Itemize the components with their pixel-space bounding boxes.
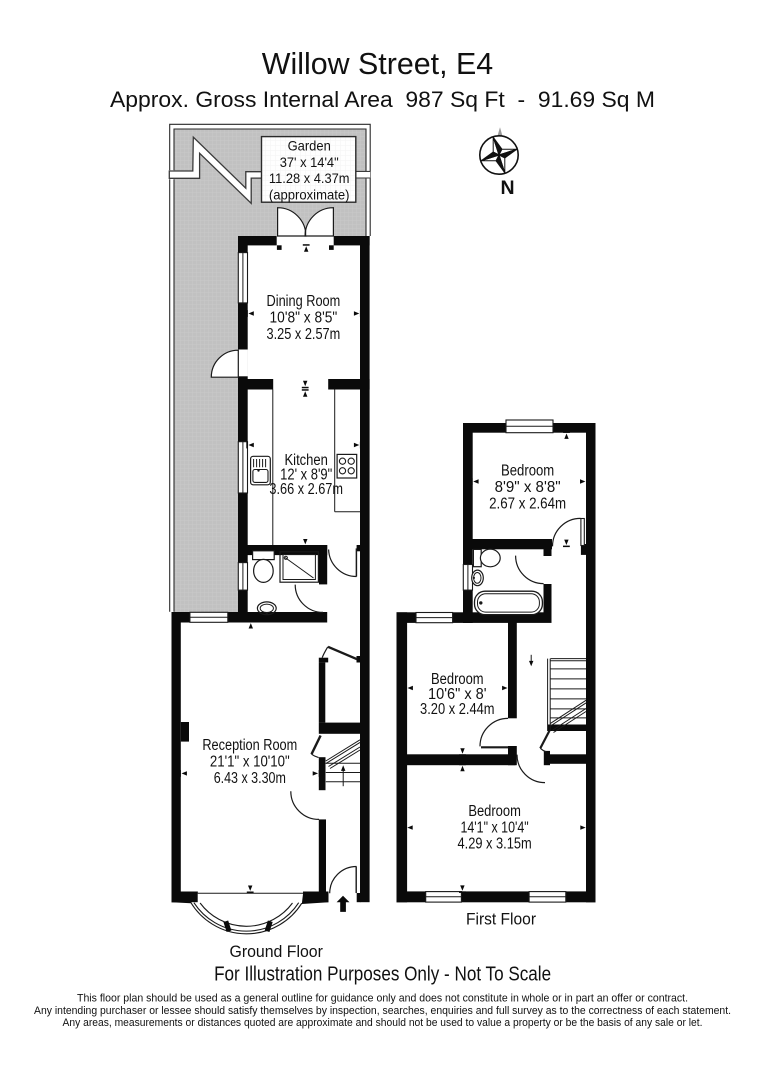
svg-text:10'8" x 8'5": 10'8" x 8'5" bbox=[270, 310, 338, 327]
svg-text:(approximate): (approximate) bbox=[269, 187, 350, 203]
svg-text:4.29 x 3.15m: 4.29 x 3.15m bbox=[458, 836, 532, 853]
svg-text:First Floor: First Floor bbox=[466, 911, 537, 929]
svg-text:Willow Street, E4: Willow Street, E4 bbox=[262, 47, 493, 81]
svg-text:6.43 x 3.30m: 6.43 x 3.30m bbox=[214, 770, 286, 787]
svg-text:Any areas, measurements or dis: Any areas, measurements or distances quo… bbox=[63, 1017, 703, 1029]
svg-text:N: N bbox=[500, 177, 514, 199]
svg-text:Bedroom: Bedroom bbox=[501, 463, 554, 480]
svg-text:Approx. Gross Internal Area 9: Approx. Gross Internal Area 987 Sq Ft - … bbox=[110, 87, 655, 112]
svg-text:Bedroom: Bedroom bbox=[468, 803, 521, 820]
svg-text:37' x 14'4": 37' x 14'4" bbox=[280, 154, 339, 170]
svg-text:14'1" x 10'4": 14'1" x 10'4" bbox=[460, 820, 528, 837]
svg-text:2.67 x 2.64m: 2.67 x 2.64m bbox=[489, 496, 566, 513]
svg-text:Ground Floor: Ground Floor bbox=[230, 943, 324, 961]
svg-text:Reception Room: Reception Room bbox=[202, 737, 297, 754]
svg-text:For Illustration Purposes Only: For Illustration Purposes Only - Not To … bbox=[214, 963, 551, 986]
svg-text:Dining Room: Dining Room bbox=[267, 293, 341, 310]
svg-text:8'9" x 8'8": 8'9" x 8'8" bbox=[495, 479, 561, 496]
svg-text:Garden: Garden bbox=[288, 138, 331, 154]
svg-text:Any intending purchaser or les: Any intending purchaser or lessee should… bbox=[34, 1005, 731, 1017]
svg-text:21'1" x 10'10": 21'1" x 10'10" bbox=[210, 753, 290, 770]
svg-text:3.66 x 2.67m: 3.66 x 2.67m bbox=[269, 481, 343, 498]
svg-text:3.25 x 2.57m: 3.25 x 2.57m bbox=[267, 326, 341, 343]
svg-text:3.20 x 2.44m: 3.20 x 2.44m bbox=[420, 701, 495, 718]
svg-text:This floor plan should be used: This floor plan should be used as a gene… bbox=[77, 993, 688, 1005]
svg-text:11.28 x 4.37m: 11.28 x 4.37m bbox=[269, 170, 350, 186]
